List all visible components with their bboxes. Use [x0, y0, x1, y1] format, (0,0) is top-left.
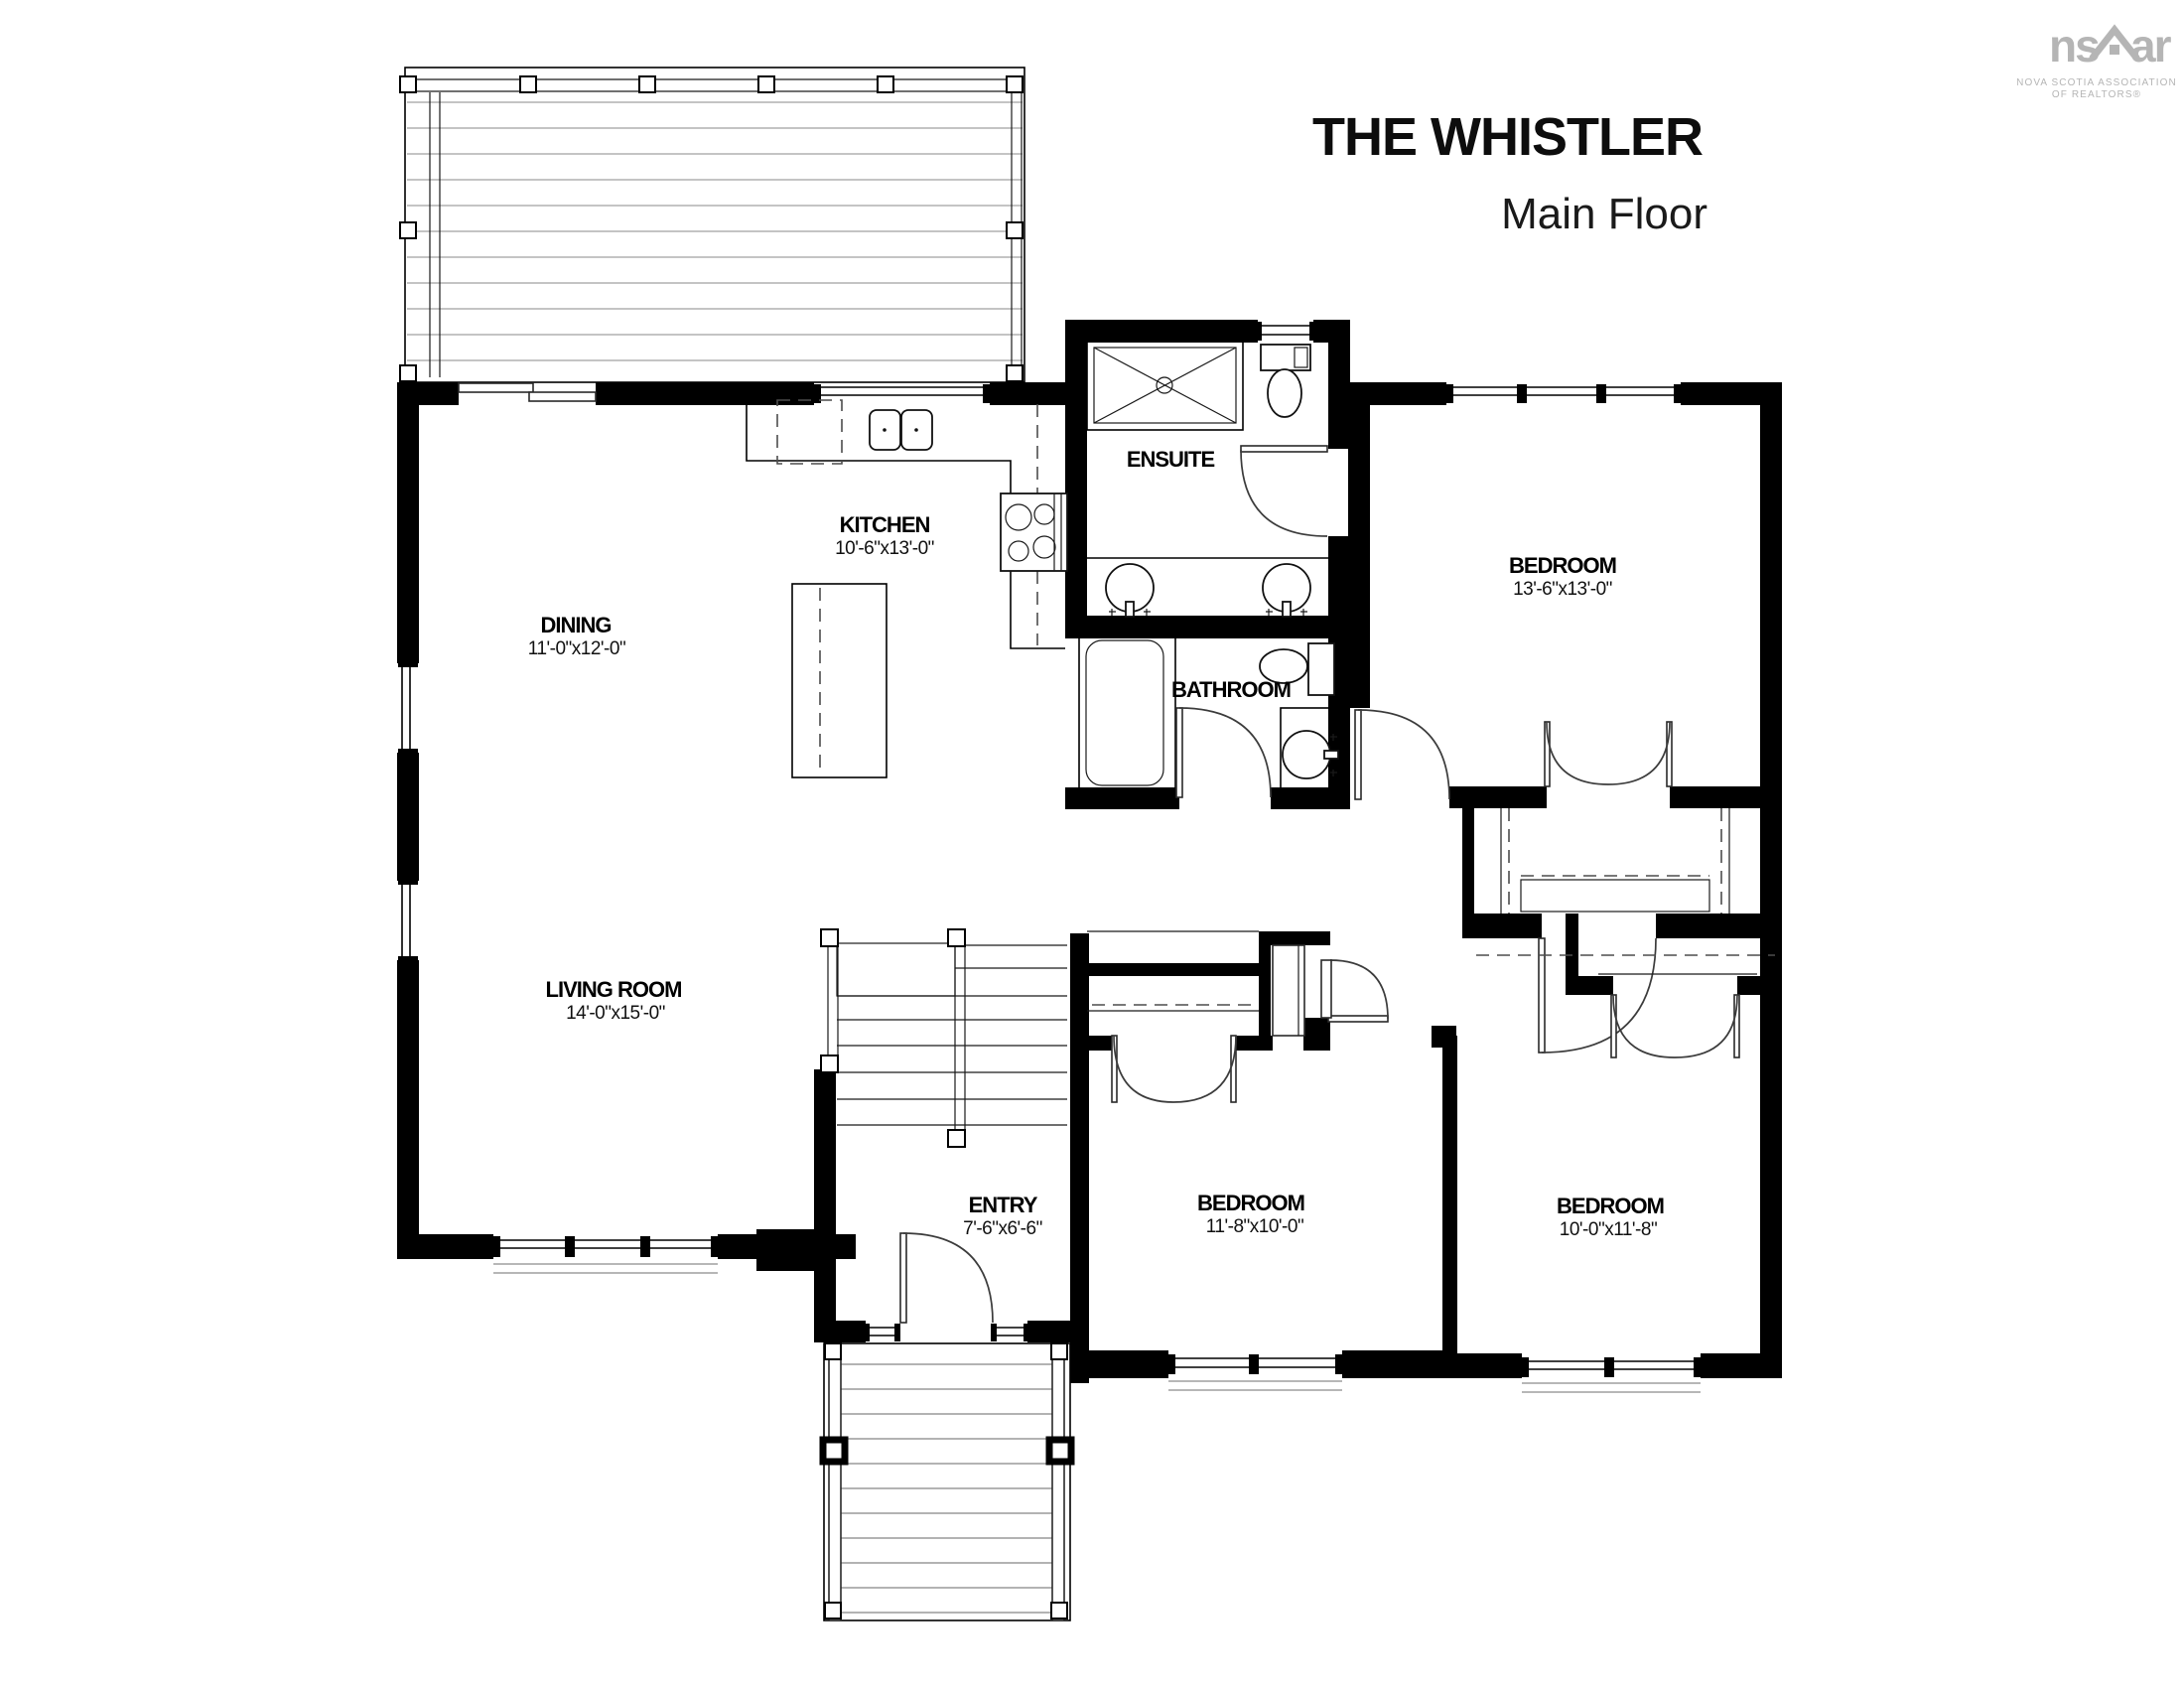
deck-boards	[407, 93, 1023, 381]
stair-treads	[837, 945, 1067, 1125]
ensuite-toilet	[1261, 345, 1310, 417]
logo-tagline-1: NOVA SCOTIA ASSOCIATION	[2016, 77, 2177, 88]
room-dims-bedroom-right: 10'-0"x11'-8"	[1560, 1219, 1657, 1240]
living-side-window	[398, 879, 418, 962]
porch-steps	[837, 1346, 1057, 1618]
front-porch	[823, 1343, 1071, 1620]
ensuite-vanity	[1087, 558, 1328, 617]
sliding-patio-door	[459, 383, 596, 401]
entry-sidelight-left	[864, 1324, 900, 1341]
stairs	[821, 929, 1067, 1147]
room-label-entry: ENTRY	[969, 1193, 1038, 1217]
living-room-window	[493, 1236, 718, 1273]
deck	[400, 68, 1024, 382]
room-label-dining: DINING	[541, 613, 612, 637]
bedroom-right-door	[1539, 938, 1656, 1053]
shower	[1087, 341, 1243, 430]
ensuite-door	[1241, 446, 1327, 536]
bedroom-right-window	[1522, 1357, 1701, 1392]
room-dims-entry: 7'-6"x6'-6"	[963, 1218, 1042, 1239]
logo-text-ar: ar	[2130, 20, 2172, 71]
bathtub	[1079, 633, 1175, 792]
room-labels: DINING 11'-0"x12'-0" KITCHEN 10'-6"x13'-…	[528, 447, 1664, 1240]
stair-railing	[821, 929, 965, 1147]
floor-plan-page: DINING 11'-0"x12'-0" KITCHEN 10'-6"x13'-…	[0, 0, 2184, 1688]
entry-door	[900, 1233, 993, 1323]
entry-sidelight-right	[991, 1324, 1029, 1341]
room-label-kitchen: KITCHEN	[840, 512, 930, 537]
room-label-bathroom: BATHROOM	[1171, 677, 1291, 702]
kitchen-island	[792, 584, 887, 777]
kitchen-sink	[870, 410, 932, 450]
title-block: THE WHISTLER Main Floor	[1312, 107, 1707, 238]
right-closet-doors	[1611, 995, 1739, 1057]
room-label-bedroom-center: BEDROOM	[1197, 1191, 1304, 1215]
master-closet-interior	[1501, 808, 1729, 914]
room-label-bedroom-right: BEDROOM	[1557, 1194, 1664, 1218]
master-bedroom-door	[1355, 710, 1449, 799]
room-label-ensuite: ENSUITE	[1127, 447, 1215, 472]
room-dims-dining: 11'-0"x12'-0"	[528, 638, 625, 659]
plan-subtitle: Main Floor	[1501, 190, 1707, 238]
room-dims-bedroom-center: 11'-8"x10'-0"	[1206, 1216, 1303, 1237]
refrigerator	[777, 400, 842, 464]
bedroom-center-window	[1168, 1354, 1342, 1390]
master-bedroom-window	[1446, 384, 1681, 403]
logo-tagline-2: OF REALTORS®	[2052, 89, 2141, 100]
floor-plan-canvas: DINING 11'-0"x12'-0" KITCHEN 10'-6"x13'-…	[0, 0, 2184, 1688]
room-label-living-room: LIVING ROOM	[546, 977, 682, 1002]
right-closet-interior	[1476, 955, 1775, 974]
logo-text-ns: ns	[2049, 20, 2099, 71]
bedroom-center-door	[1273, 945, 1388, 1036]
room-dims-kitchen: 10'-6"x13'-0"	[835, 538, 934, 559]
center-closet-doors	[1112, 1036, 1236, 1102]
master-closet-doors	[1545, 722, 1672, 786]
nsar-logo: ns ar NOVA SCOTIA ASSOCIATION OF REALTOR…	[2016, 20, 2177, 100]
stair-hatch	[837, 943, 955, 996]
room-dims-living-room: 14'-0"x15'-0"	[566, 1003, 665, 1024]
room-dims-bedroom-master: 13'-6"x13'-0"	[1513, 579, 1612, 600]
ensuite-window	[1256, 322, 1315, 341]
plan-title: THE WHISTLER	[1312, 107, 1703, 167]
stove	[1001, 493, 1067, 571]
dining-side-window	[398, 661, 418, 755]
room-label-bedroom-master: BEDROOM	[1509, 553, 1616, 578]
bathroom-door	[1176, 708, 1271, 797]
interior-walls	[1065, 343, 1782, 1378]
